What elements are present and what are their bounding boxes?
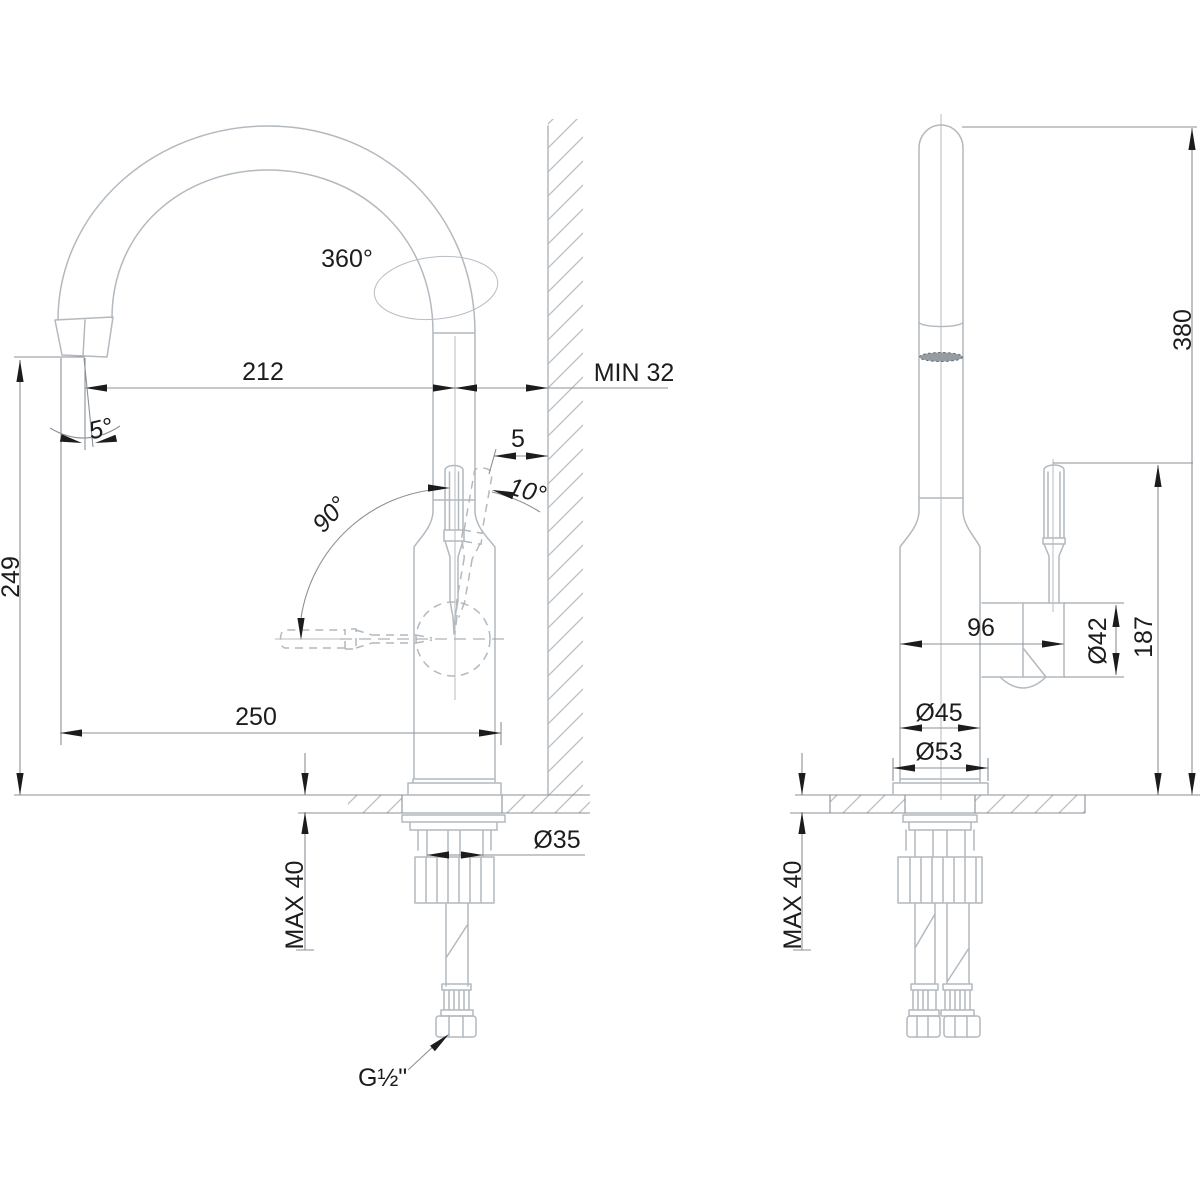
- label-counter-max-left: MAX 40: [281, 861, 309, 950]
- counter-hatch-left: [348, 795, 402, 813]
- background: [0, 0, 1200, 1200]
- label-total-height: 380: [1169, 309, 1197, 351]
- label-spout-height: 249: [0, 556, 25, 598]
- label-total-depth: 250: [235, 703, 277, 731]
- label-flange-diameter: Ø53: [915, 738, 962, 766]
- label-handle-wall-gap: 5: [511, 425, 525, 453]
- technical-drawing-page: 212 MIN 32 249 250 MAX 40: [0, 0, 1200, 1200]
- label-wall-min: MIN 32: [594, 359, 675, 387]
- label-counter-max-right: MAX 40: [779, 861, 807, 950]
- counter-hatch-left: [830, 795, 905, 813]
- label-shank-diameter: Ø35: [533, 826, 580, 854]
- label-body-depth: 96: [967, 614, 995, 642]
- label-swivel-group: 360°: [321, 245, 373, 273]
- label-spout-reach: 212: [242, 358, 284, 386]
- label-swivel: 360°: [321, 245, 373, 273]
- faucet-installation-drawing: 212 MIN 32 249 250 MAX 40: [0, 0, 1200, 1200]
- aerator-band: [920, 353, 963, 362]
- counter-hatch-right: [502, 795, 590, 813]
- counter-hatch-right: [975, 795, 1085, 813]
- label-thread: G½": [358, 1064, 407, 1092]
- label-handle-height: 187: [1130, 616, 1158, 658]
- wall-section: [548, 119, 583, 795]
- label-valve-diameter: Ø42: [1084, 617, 1112, 664]
- label-body-diameter: Ø45: [915, 699, 962, 727]
- wall-hatch: [548, 119, 583, 795]
